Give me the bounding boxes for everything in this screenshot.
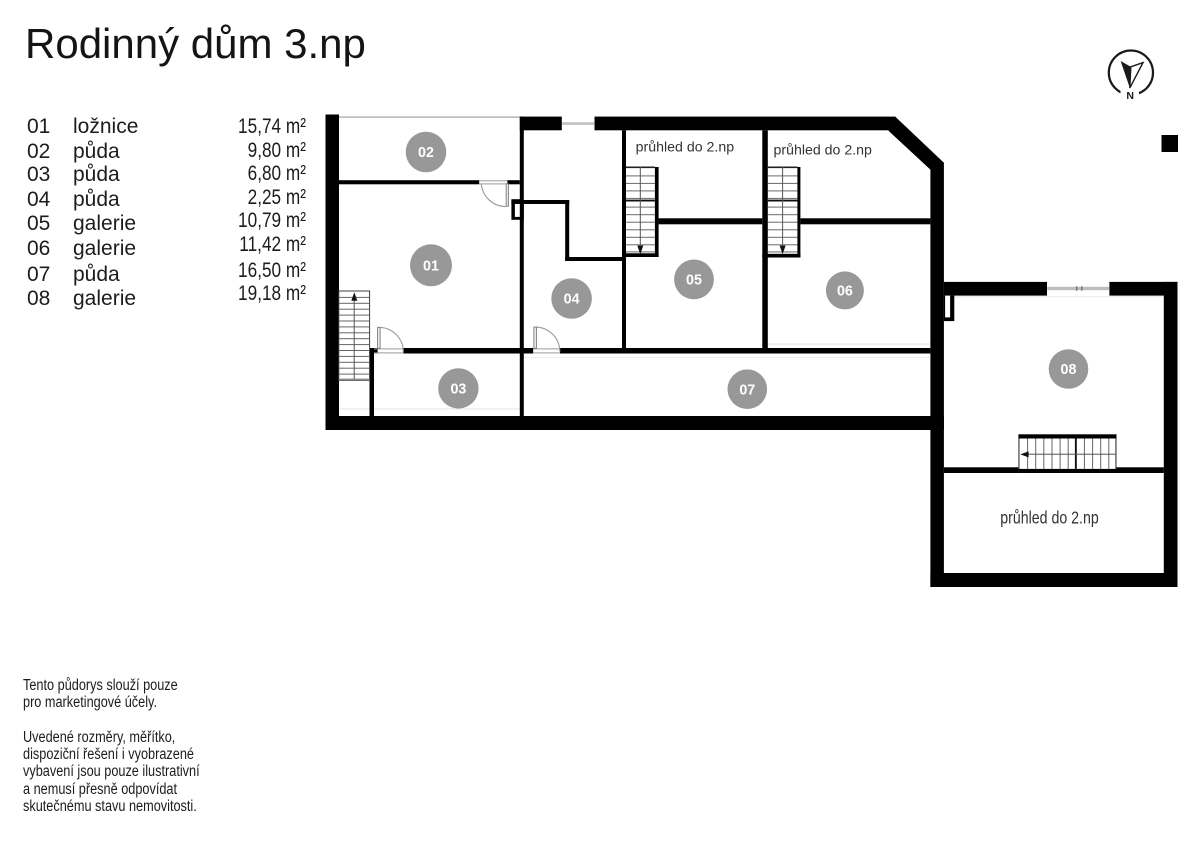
- svg-text:08: 08: [1061, 362, 1077, 378]
- svg-text:01: 01: [423, 258, 439, 274]
- svg-text:N: N: [1126, 90, 1134, 102]
- svg-text:03: 03: [450, 382, 466, 398]
- svg-text:05: 05: [686, 273, 702, 289]
- svg-text:průhled do 2.np: průhled do 2.np: [1000, 508, 1098, 528]
- svg-text:průhled do 2.np: průhled do 2.np: [636, 139, 735, 155]
- svg-text:04: 04: [564, 292, 580, 308]
- svg-text:průhled do 2.np: průhled do 2.np: [774, 142, 873, 158]
- svg-text:02: 02: [418, 145, 434, 161]
- svg-text:06: 06: [837, 284, 853, 300]
- svg-text:07: 07: [739, 382, 755, 398]
